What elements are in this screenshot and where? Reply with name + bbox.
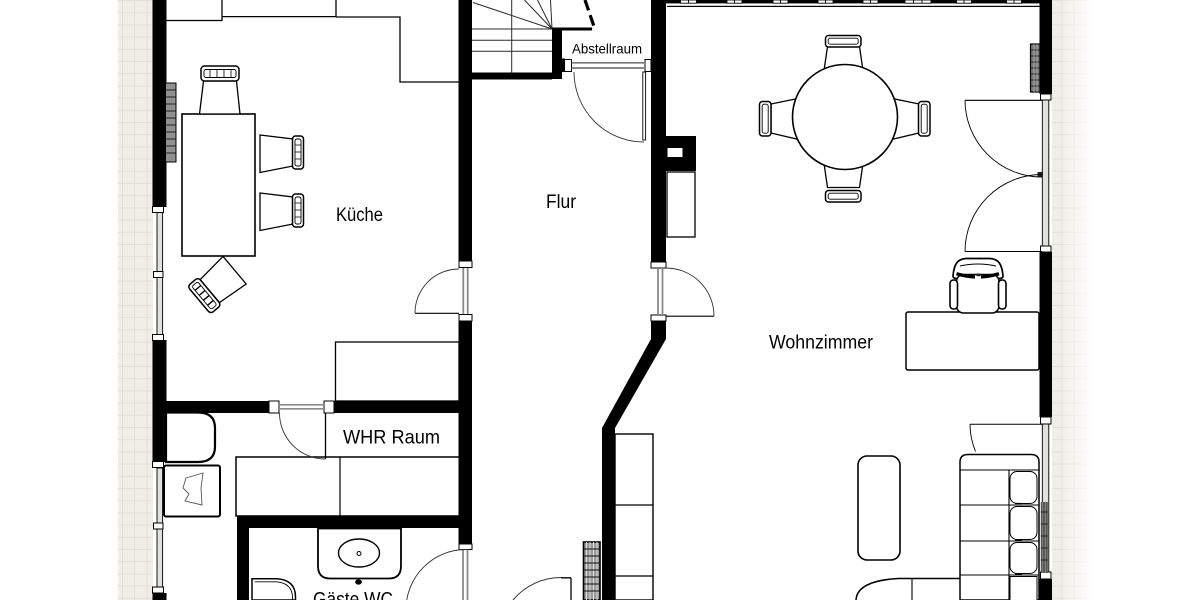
svg-text:WHR Raum: WHR Raum bbox=[343, 428, 440, 449]
svg-text:Wohnzimmer: Wohnzimmer bbox=[769, 333, 874, 354]
svg-text:Abstellraum: Abstellraum bbox=[572, 41, 642, 57]
svg-text:Flur: Flur bbox=[546, 192, 577, 213]
svg-text:Küche: Küche bbox=[336, 205, 383, 226]
svg-text:Gäste WC: Gäste WC bbox=[313, 589, 393, 600]
